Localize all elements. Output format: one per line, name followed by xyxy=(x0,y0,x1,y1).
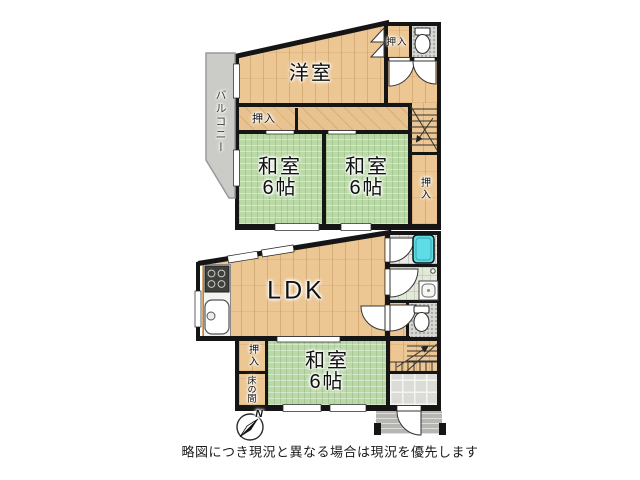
window xyxy=(341,224,371,231)
japanese-room-2f-right-label: 和室 6帖 xyxy=(345,157,389,199)
bifold-door-icon xyxy=(371,28,384,57)
western-room-label: 洋室 xyxy=(289,64,333,85)
closet-2f-hall-label: 押入 xyxy=(252,110,276,126)
window xyxy=(261,245,294,257)
window xyxy=(234,64,240,98)
disclaimer-text: 略図につき現況と異なる場合は現況を優先します xyxy=(181,442,478,461)
door-opening xyxy=(385,269,390,295)
toilet-1f-fixture xyxy=(414,306,429,332)
window xyxy=(195,291,201,327)
door-arc xyxy=(389,61,414,86)
door-arc xyxy=(390,238,414,262)
closet-2f-side-label: 押入 xyxy=(417,177,432,201)
washbasin xyxy=(419,269,438,300)
door-arc xyxy=(413,61,436,84)
kitchen-stove xyxy=(205,266,229,292)
sliding-door-opening xyxy=(277,337,340,343)
door-opening xyxy=(385,238,390,262)
window xyxy=(330,405,366,412)
compass-north-label: N xyxy=(255,408,263,420)
stairs-1f xyxy=(390,344,437,371)
door-opening xyxy=(328,131,356,135)
kitchen-sink xyxy=(205,300,229,334)
toilet-2f-fixture xyxy=(415,28,430,54)
door-arc xyxy=(361,306,385,330)
door-opening xyxy=(385,305,390,331)
door-arc xyxy=(390,305,416,331)
tokonoma-label: 床の間 xyxy=(246,376,259,403)
door-opening xyxy=(397,406,421,412)
window xyxy=(227,251,258,263)
door-arc xyxy=(397,411,421,435)
bathtub xyxy=(413,235,434,263)
window xyxy=(283,405,321,412)
window xyxy=(275,224,319,231)
closet-1f-label: 押入 xyxy=(245,344,260,368)
balcony-label: バルコニー xyxy=(212,90,228,155)
window xyxy=(234,150,240,186)
japanese-room-1f-label: 和室 6帖 xyxy=(305,351,349,393)
ldk-label: LDK xyxy=(267,277,325,306)
door-arc xyxy=(390,269,418,297)
stairs-2f xyxy=(410,105,437,150)
japanese-room-2f-left-label: 和室 6帖 xyxy=(258,157,302,199)
door-opening xyxy=(266,131,294,135)
floorplan-canvas: バルコニー 洋室 押入 押入 和室 6帖 和室 6帖 押入 LDK 押入 床の間… xyxy=(0,0,640,480)
closet-2f-top-label: 押入 xyxy=(386,34,407,48)
